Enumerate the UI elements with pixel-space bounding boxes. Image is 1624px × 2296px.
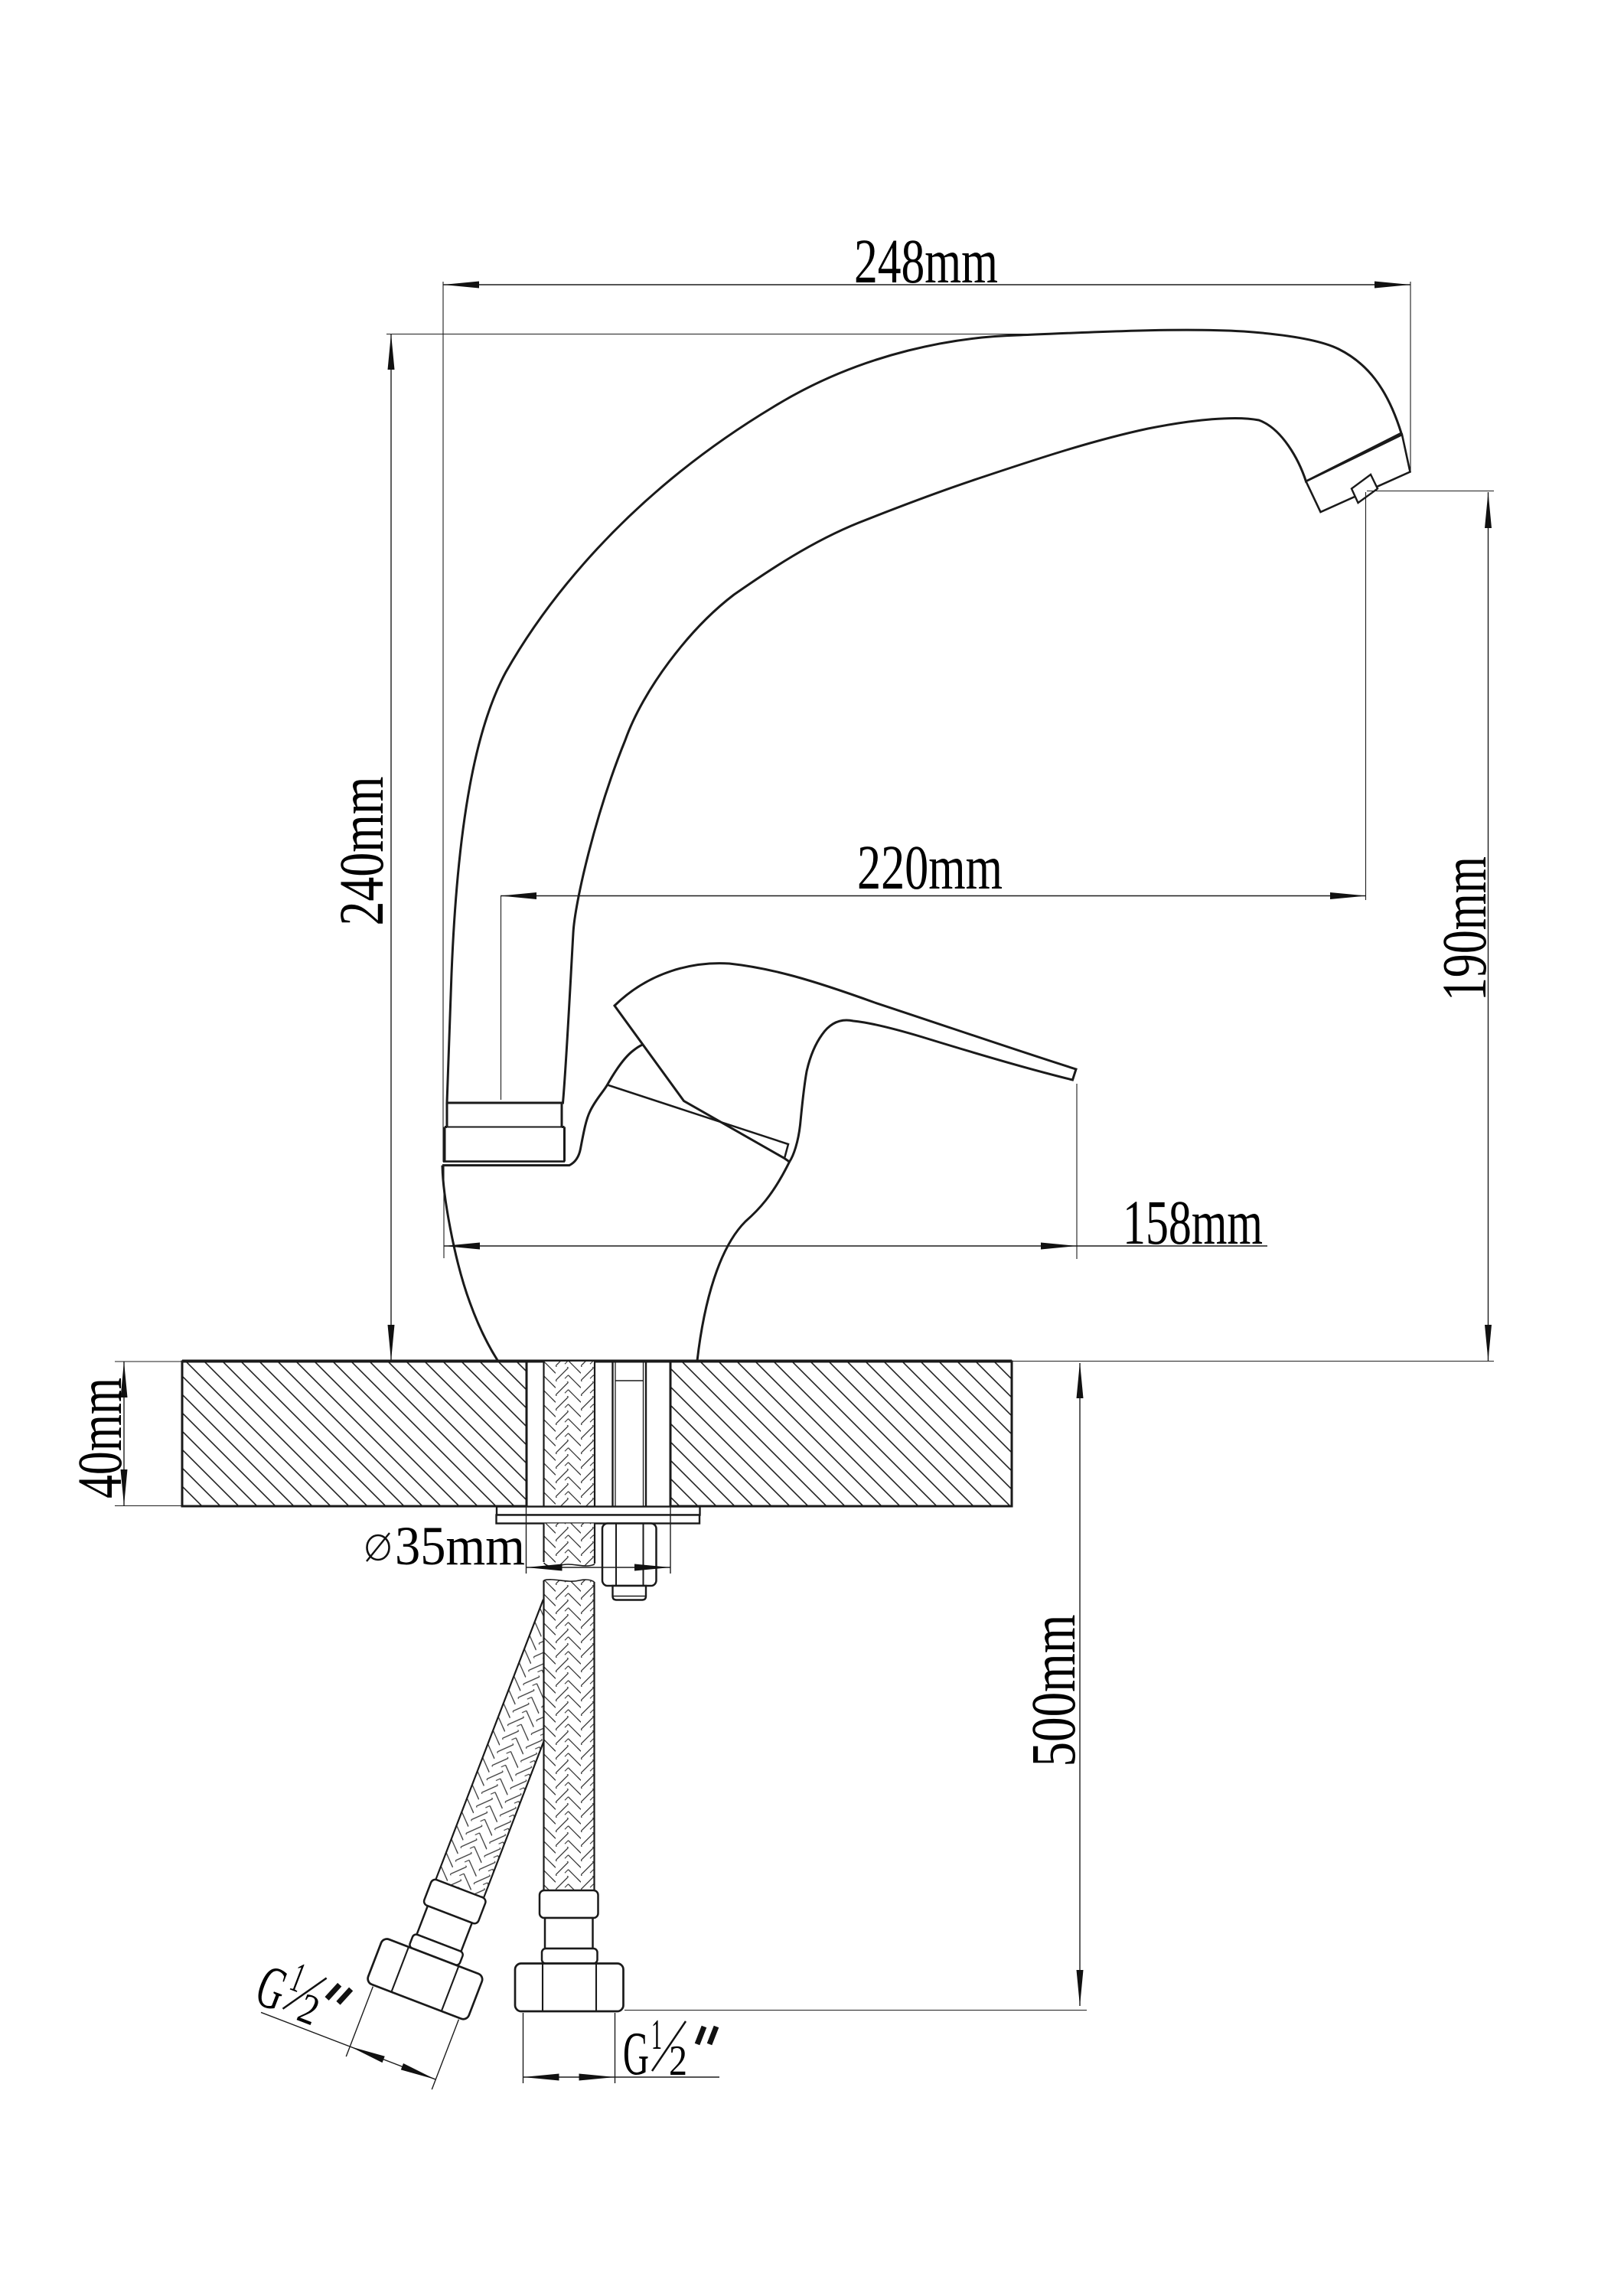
svg-text:240mm: 240mm: [326, 777, 396, 926]
svg-text:1: 1: [651, 2011, 662, 2059]
svg-text:158mm: 158mm: [1123, 1187, 1263, 1257]
svg-text:G: G: [623, 2020, 649, 2088]
svg-text:35mm: 35mm: [395, 1515, 525, 1577]
svg-text:220mm: 220mm: [857, 832, 1003, 902]
svg-text:500mm: 500mm: [1018, 1615, 1088, 1767]
svg-text:248mm: 248mm: [854, 226, 998, 296]
svg-text:2: 2: [669, 2037, 687, 2085]
